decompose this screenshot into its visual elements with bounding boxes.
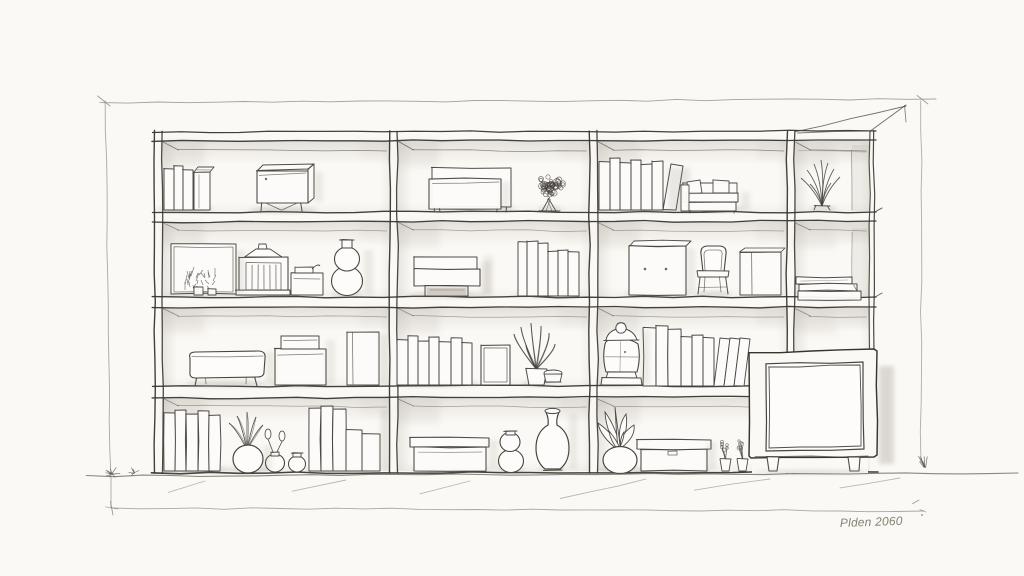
svg-text:Plden 2060: Plden 2060	[840, 514, 903, 530]
